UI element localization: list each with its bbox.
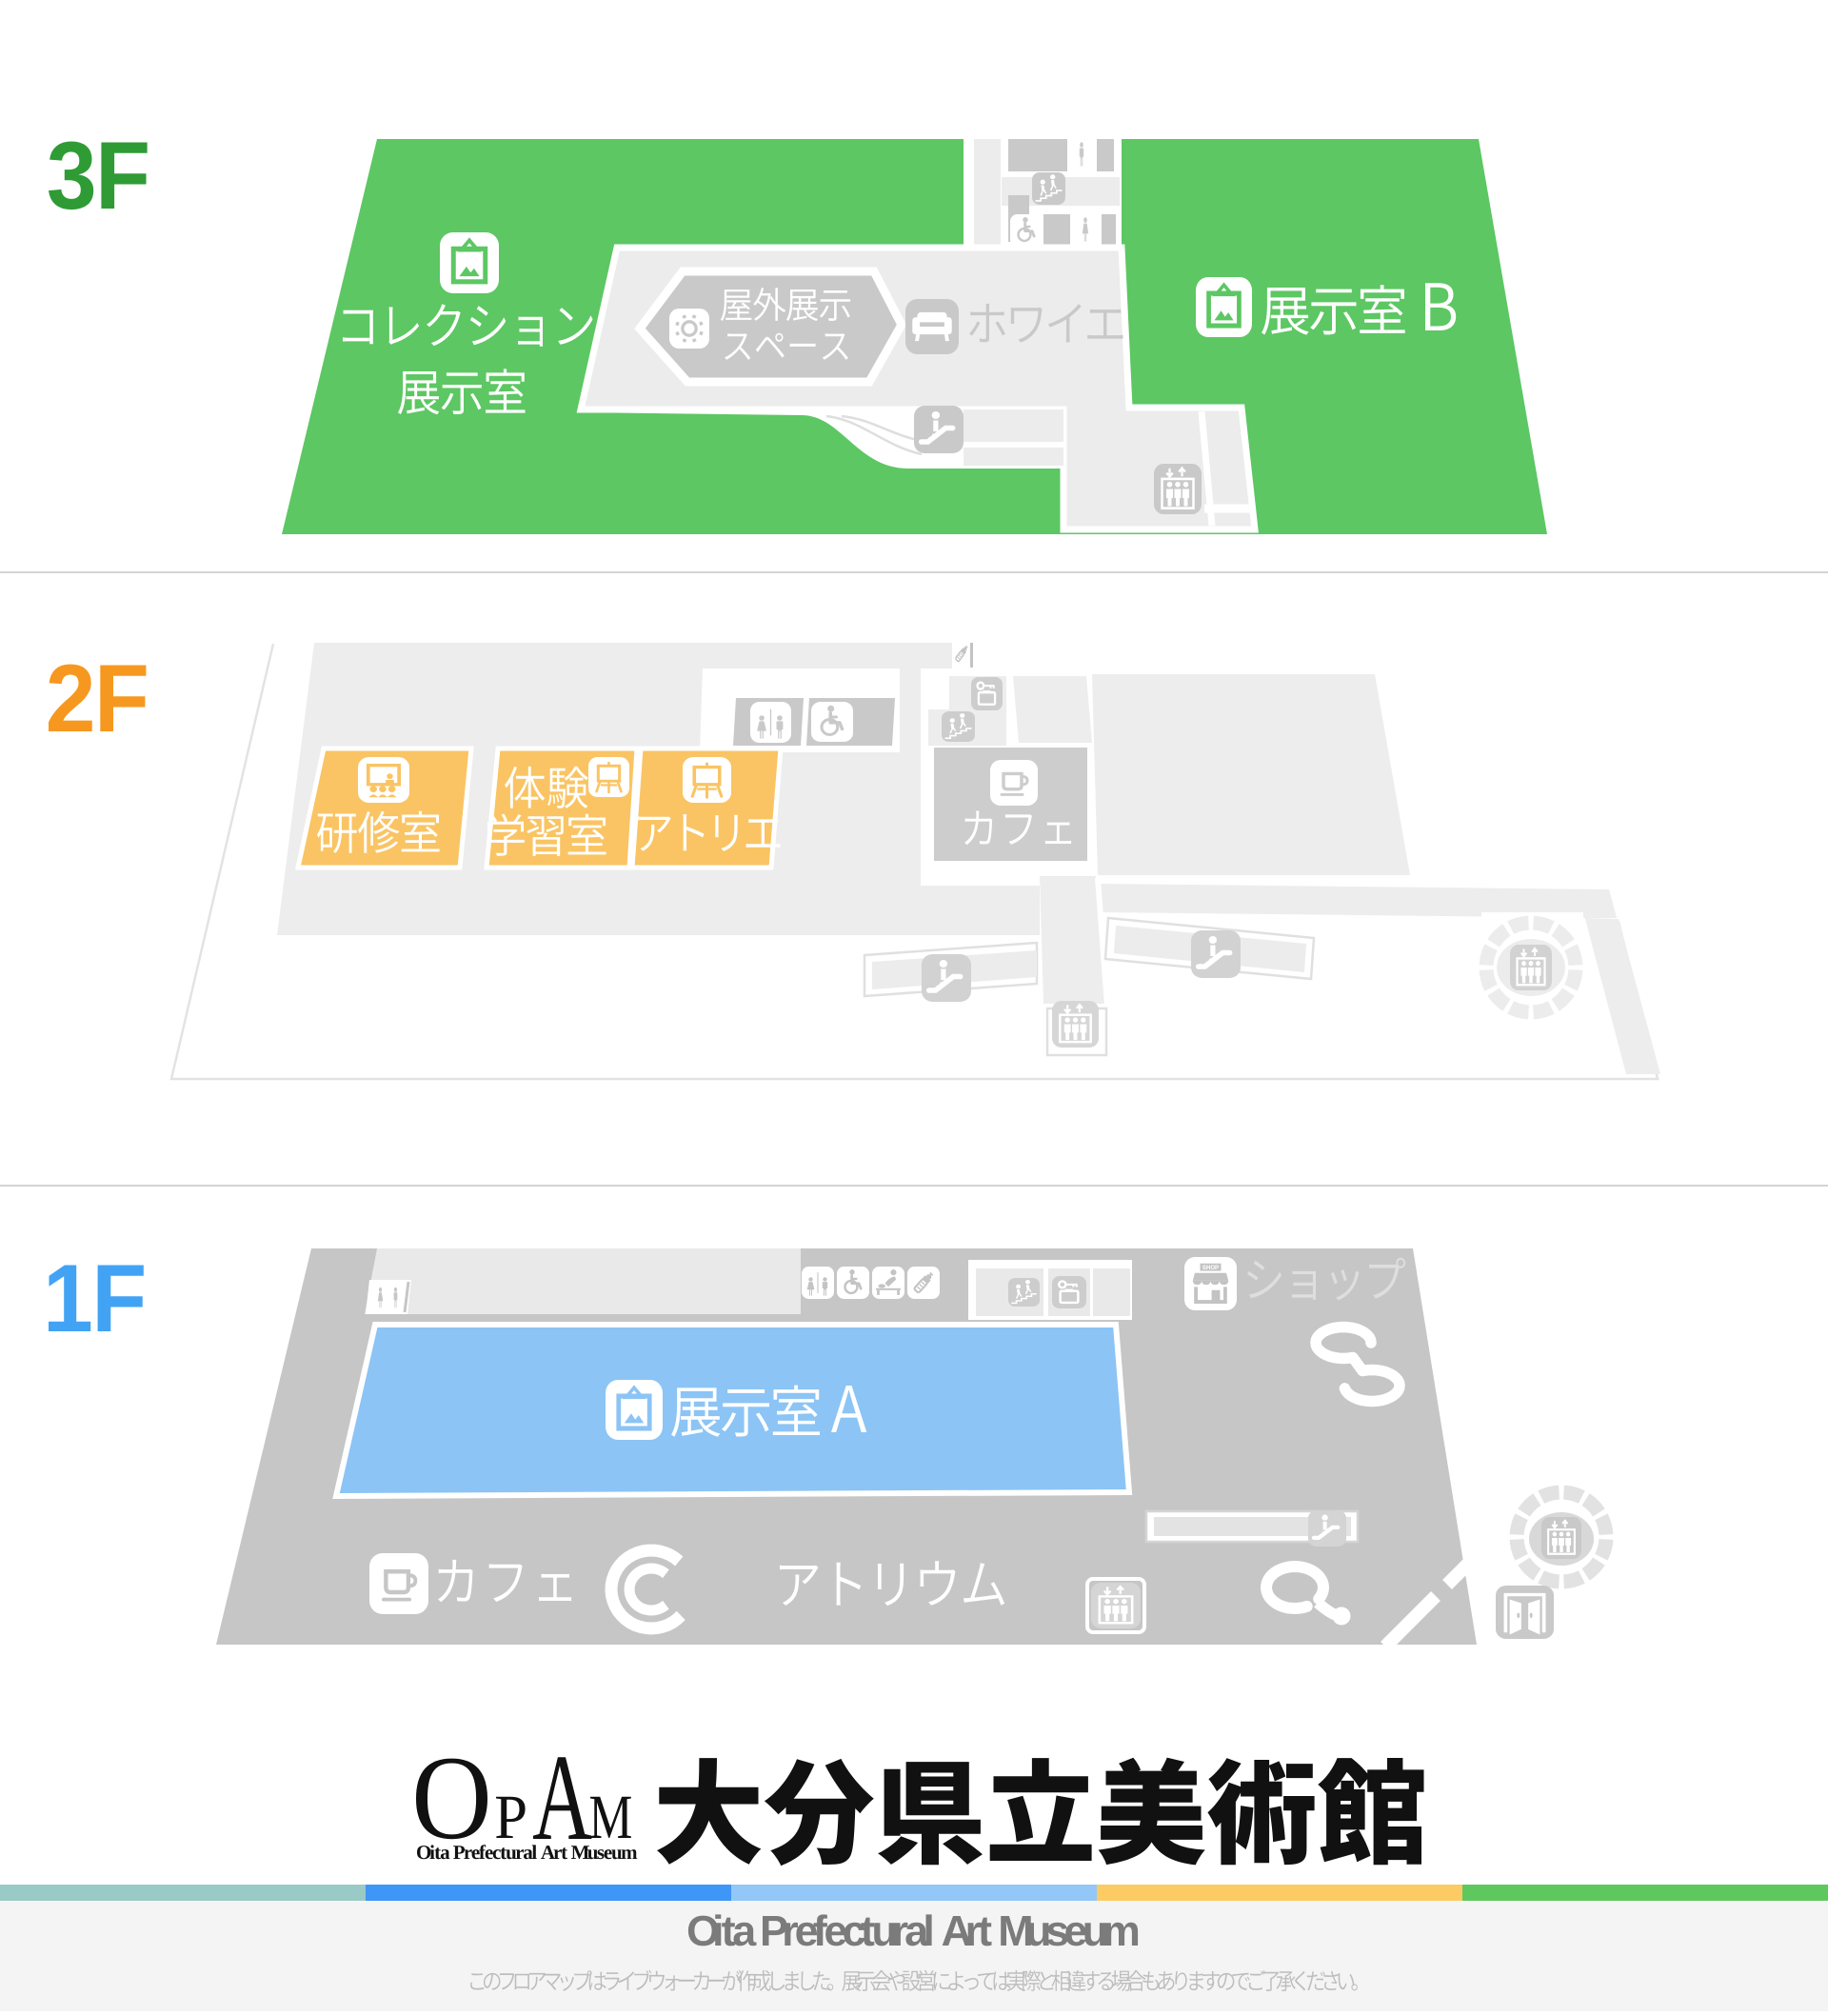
svg-text:SHOP: SHOP	[1202, 1265, 1219, 1271]
